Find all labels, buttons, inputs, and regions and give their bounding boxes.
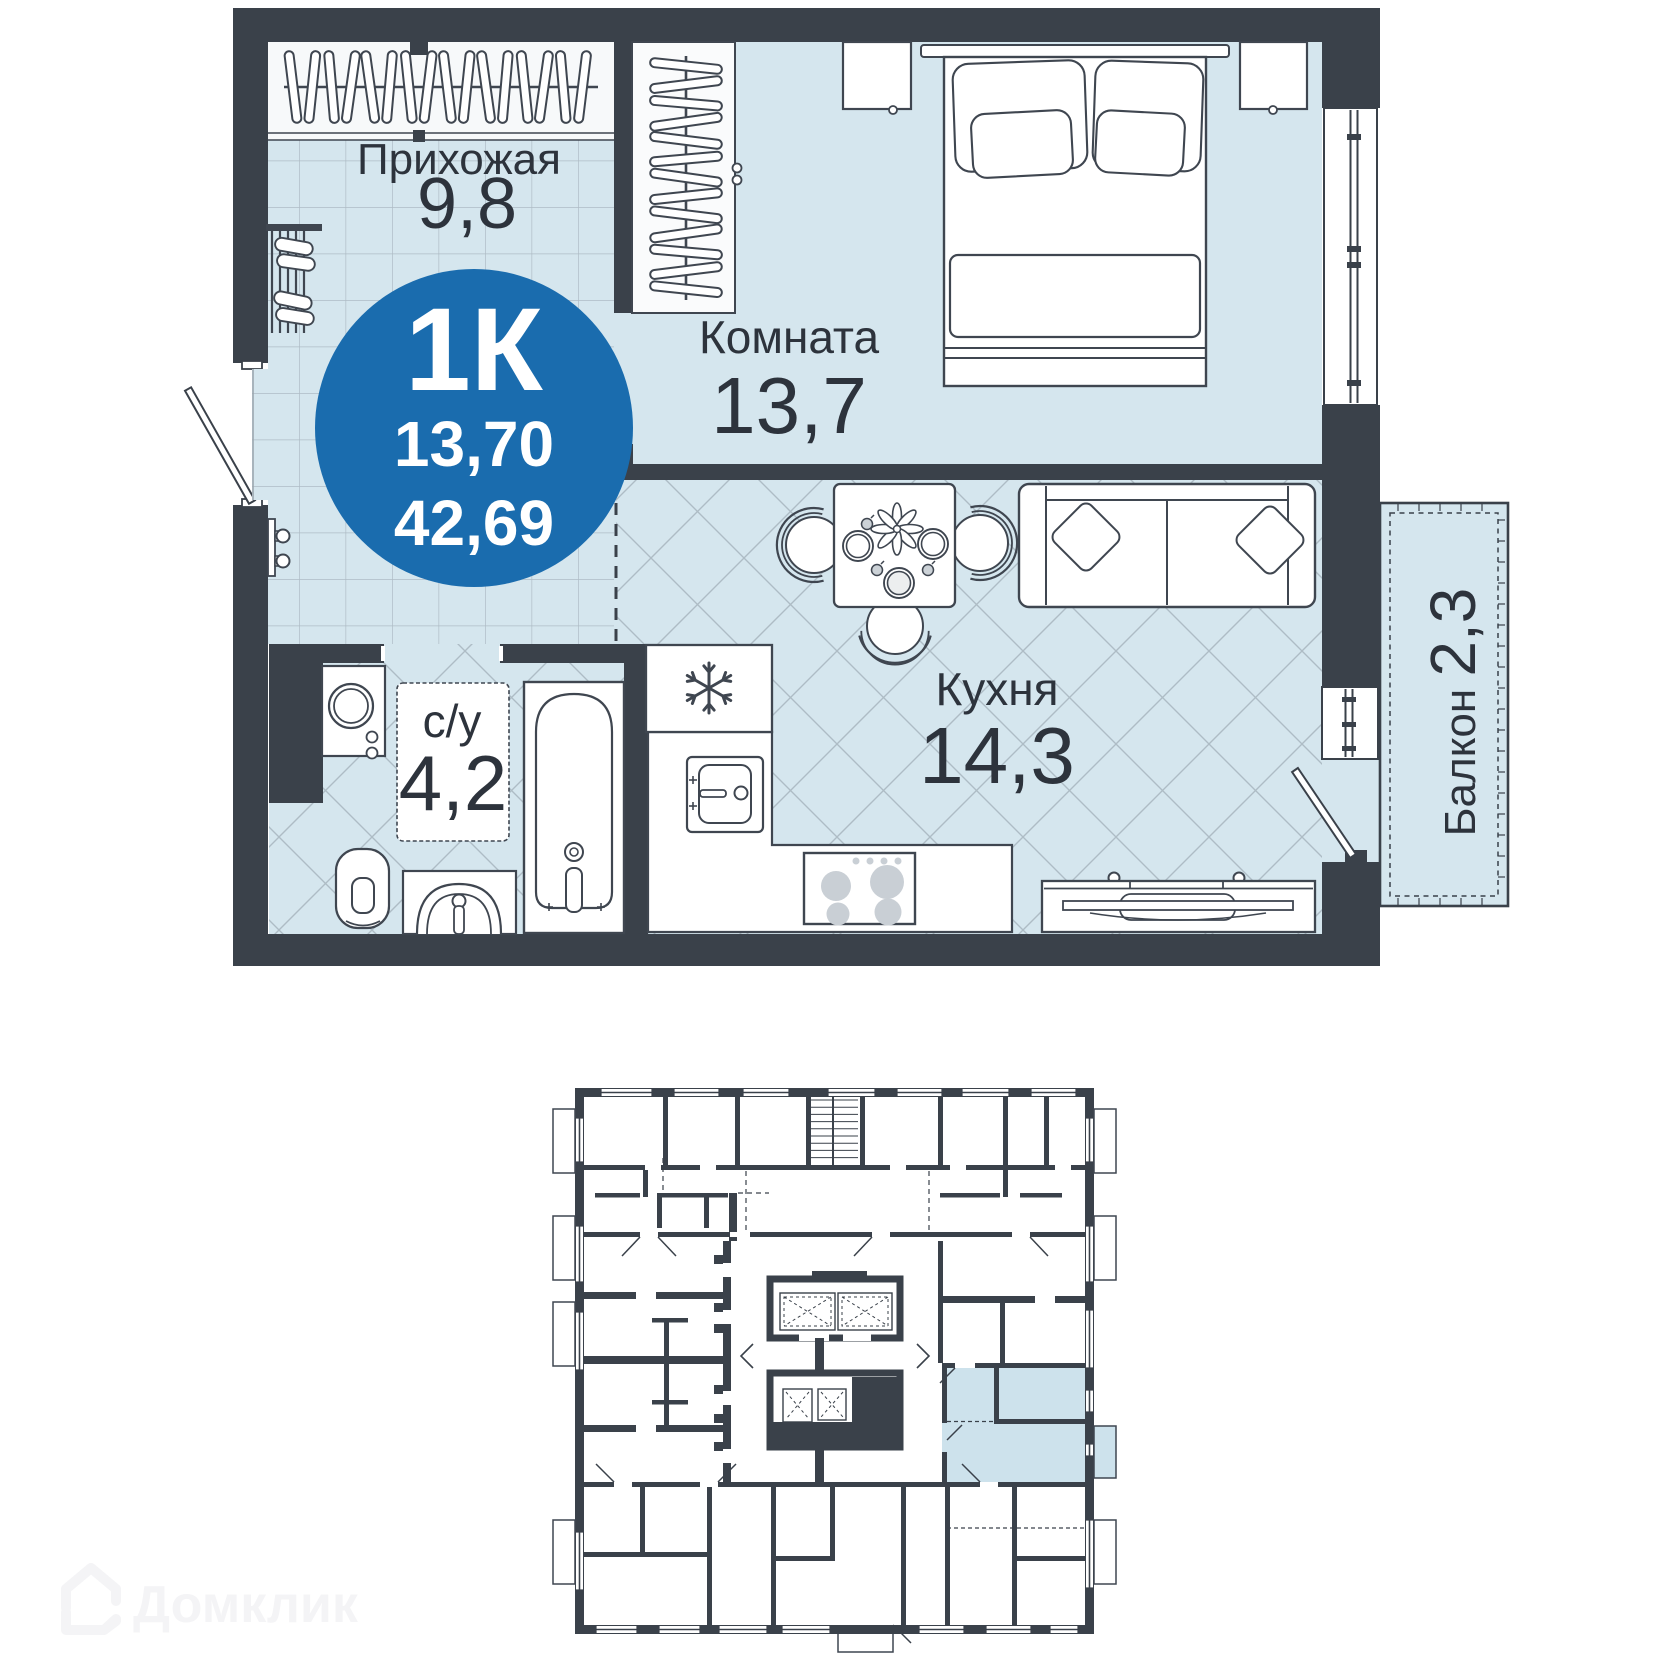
svg-text:1К: 1К (405, 284, 544, 416)
svg-text:13,7: 13,7 (711, 361, 867, 450)
svg-text:4,2: 4,2 (399, 739, 507, 827)
svg-text:14,3: 14,3 (919, 711, 1075, 800)
svg-text:Домклик: Домклик (133, 1576, 359, 1634)
svg-text:13,70: 13,70 (394, 408, 554, 480)
svg-text:42,69: 42,69 (394, 487, 554, 559)
svg-text:Кухня: Кухня (935, 663, 1058, 715)
svg-text:9,8: 9,8 (417, 164, 517, 244)
svg-text:Комната: Комната (699, 311, 880, 363)
